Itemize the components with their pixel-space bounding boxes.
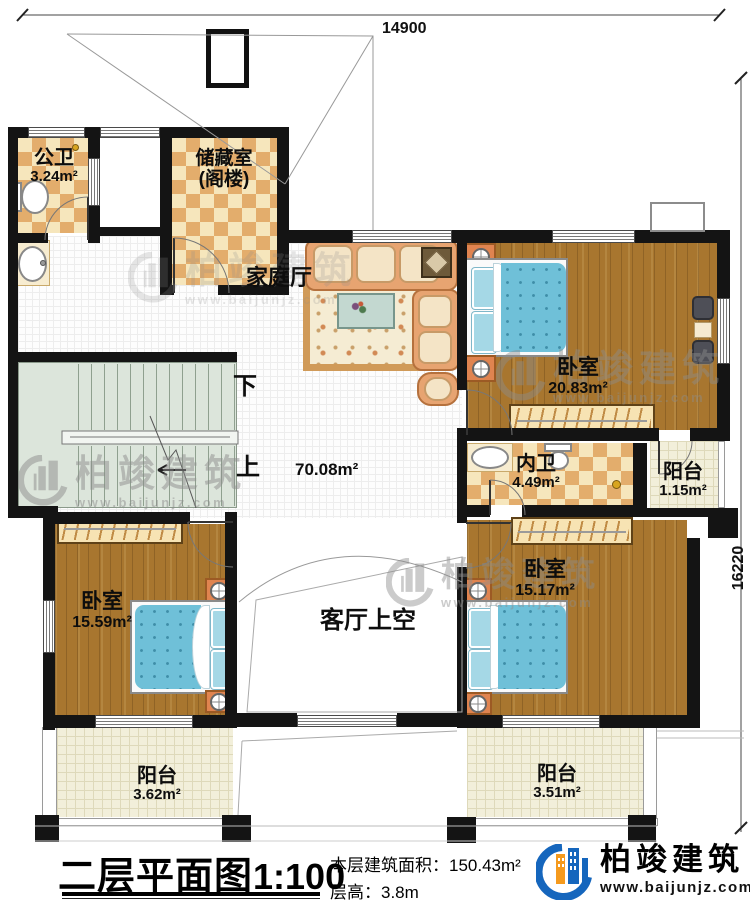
- brand-url: www.baijunjz.com: [600, 879, 750, 896]
- room-name: 卧室: [536, 356, 620, 380]
- room-label-bedroom-bottom-right: 卧室 15.17m²: [503, 558, 587, 599]
- room-name: 卧室: [60, 590, 144, 614]
- room-area: 3.51m²: [512, 785, 602, 802]
- floor-height-value: 3.8m: [381, 883, 419, 902]
- room-area: 3.62m²: [112, 787, 202, 804]
- room-label-balcony-bottom-left: 阳台 3.62m²: [112, 765, 202, 804]
- dimension-top: 14900: [382, 20, 427, 38]
- watermark-url: www.baijunjz.com: [75, 495, 247, 510]
- watermark-url: www.baijunjz.com: [185, 292, 357, 307]
- room-area: 15.17m²: [503, 582, 587, 600]
- floor-height-label: 层高：: [330, 883, 381, 902]
- room-label-public-bath: 公卫 3.24m²: [20, 147, 88, 186]
- brand-logo-icon: [536, 844, 592, 900]
- room-label-family-hall: 家庭厅: [246, 266, 312, 291]
- room-name: 阳台: [650, 461, 716, 483]
- room-label-bedroom-top-right: 卧室 20.83m²: [536, 356, 620, 397]
- room-name: 储藏室: [176, 148, 272, 169]
- room-name: 内卫: [500, 453, 572, 475]
- room-area: 20.83m²: [536, 380, 620, 398]
- room-name: 卧室: [503, 558, 587, 582]
- room-name-sub: (阁楼): [176, 169, 272, 190]
- watermark-logo-icon: [128, 252, 178, 304]
- room-area: 3.24m²: [20, 169, 88, 186]
- brand-logo: 柏竣建筑 www.baijunjz.com: [536, 844, 750, 900]
- room-name: 阳台: [112, 765, 202, 787]
- watermark: 柏竣建筑www.baijunjz.com: [128, 252, 357, 307]
- living-void-label: 客厅上空: [320, 608, 416, 635]
- title-underline: [62, 892, 320, 899]
- room-area: 15.59m²: [60, 614, 144, 632]
- floor-height-line: 层高：3.8m: [330, 878, 419, 903]
- room-label-balcony-right: 阳台 1.15m²: [650, 461, 716, 500]
- floor-area-value: 150.43m²: [449, 856, 521, 875]
- room-name: 阳台: [512, 763, 602, 785]
- room-label-bedroom-bottom-left: 卧室 15.59m²: [60, 590, 144, 631]
- floorplan-canvas: 柏竣建筑www.baijunjz.com 柏竣建筑www.baijunjz.co…: [0, 0, 750, 907]
- floor-area-label: 本层建筑面积：: [330, 856, 449, 875]
- room-area: 4.49m²: [500, 475, 572, 492]
- watermark-text: 柏竣建筑: [75, 455, 247, 492]
- stairs-down-label: 下: [233, 374, 257, 401]
- stairs-up-label: 上: [236, 455, 260, 482]
- watermark: 柏竣建筑www.baijunjz.com: [18, 455, 247, 510]
- floor-area-line: 本层建筑面积：150.43m²: [330, 851, 521, 876]
- watermark-logo-icon: [386, 558, 434, 608]
- room-label-balcony-bottom-right: 阳台 3.51m²: [512, 763, 602, 802]
- dimension-right: 16220: [730, 546, 748, 591]
- room-name: 公卫: [20, 147, 88, 169]
- room-area: 1.15m²: [650, 483, 716, 500]
- brand-name: 柏竣建筑: [600, 844, 750, 877]
- room-label-ensuite-bath: 内卫 4.49m²: [500, 453, 572, 492]
- watermark-logo-icon: [18, 455, 68, 507]
- hall-area-label: 70.08m²: [295, 460, 358, 479]
- room-label-storage: 储藏室 (阁楼): [176, 148, 272, 191]
